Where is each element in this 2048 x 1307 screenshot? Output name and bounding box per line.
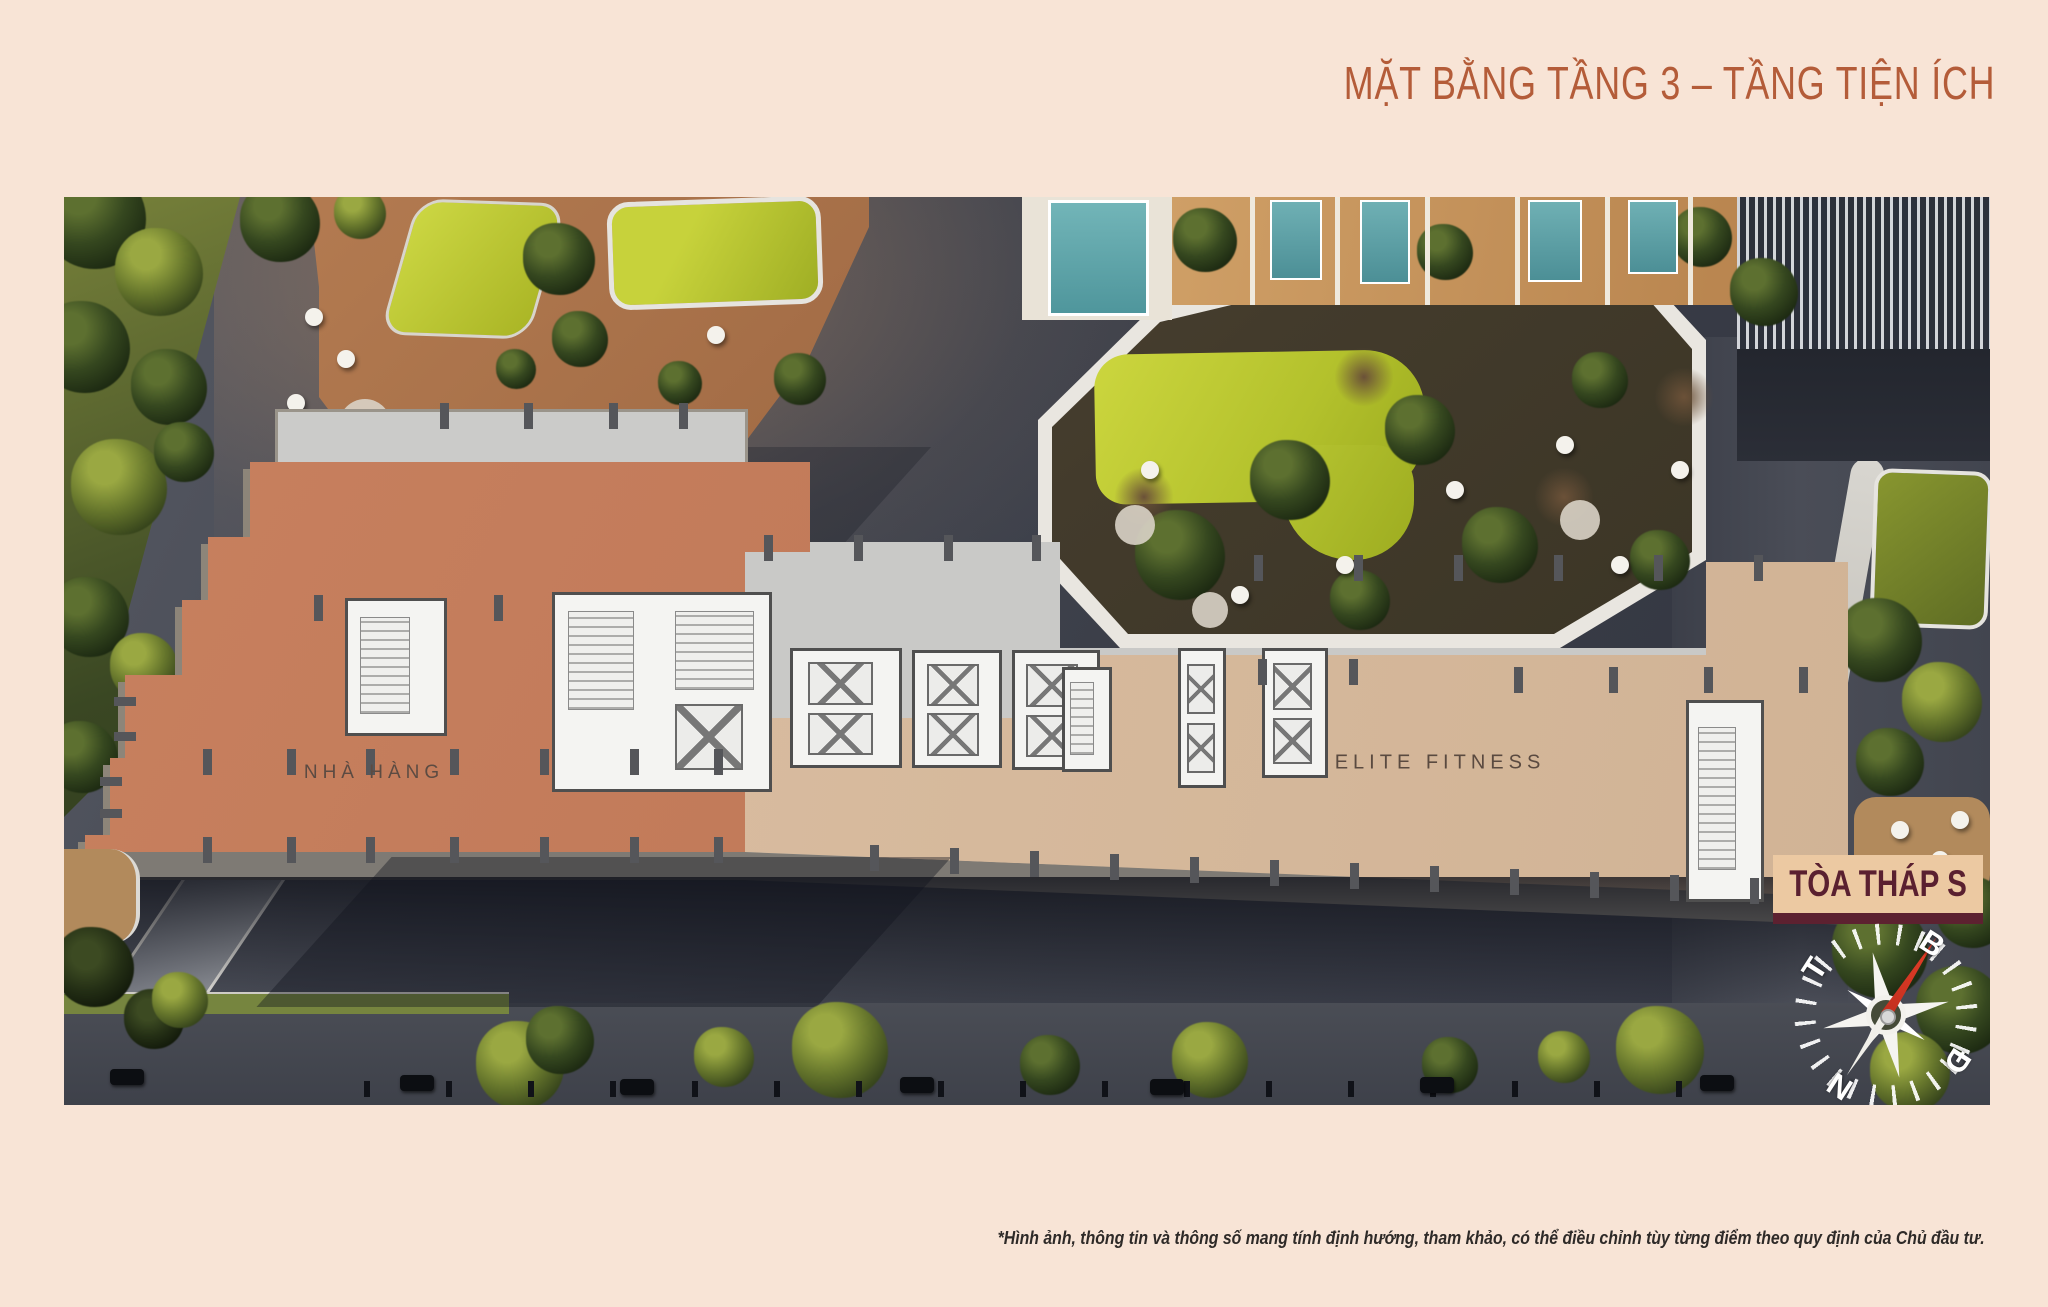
swimming-pool xyxy=(1048,200,1149,316)
sand-terrace xyxy=(64,849,140,944)
wall-tick xyxy=(1754,555,1763,581)
tree xyxy=(71,439,167,535)
wall-tick xyxy=(100,777,122,786)
tree xyxy=(115,228,203,316)
compass-pin xyxy=(1880,1009,1896,1025)
tree xyxy=(1462,507,1538,583)
area-label-nha-hang: NHÀ HÀNG xyxy=(304,762,444,784)
tree xyxy=(131,349,207,425)
floor-slab xyxy=(278,542,1060,857)
area-label-elite-fitness: ELITE FITNESS xyxy=(1335,752,1546,775)
tree xyxy=(1902,662,1982,742)
wall-tick xyxy=(1554,555,1563,581)
umbrella-icon xyxy=(1446,481,1464,499)
tree xyxy=(64,721,118,793)
tree xyxy=(110,633,178,701)
umbrella-icon xyxy=(1556,436,1574,454)
tree xyxy=(1330,570,1390,630)
mulch-bed xyxy=(1534,467,1594,527)
lawn-patch xyxy=(1869,468,1990,630)
tree xyxy=(64,577,129,657)
siteplan-render: NHÀ HÀNG ELITE FITNESS TÒA THÁP S B Đ N … xyxy=(64,197,1990,1105)
wall-tick xyxy=(1654,555,1663,581)
tower-tag-label: TÒA THÁP S xyxy=(1789,863,1967,905)
tower-roof xyxy=(1737,349,1990,461)
compass-icon: B Đ N T xyxy=(1776,905,1990,1105)
courtyard-lawn xyxy=(1282,445,1414,560)
disclaimer: *Hình ảnh, thông tin và thông số mang tí… xyxy=(998,1228,1985,1249)
floor-slab xyxy=(278,412,745,544)
tree xyxy=(1856,728,1924,796)
tree xyxy=(1630,530,1690,590)
wall-tick xyxy=(114,732,136,741)
villa-deck xyxy=(1172,197,1737,305)
page-title: MẶT BẰNG TẦNG 3 – TẦNG TIỆN ÍCH xyxy=(1343,56,1995,110)
tree xyxy=(1135,510,1225,600)
wall-tick xyxy=(203,749,212,775)
patio-circle xyxy=(1192,592,1228,628)
lawn-patch xyxy=(606,197,824,311)
wall-tick xyxy=(1254,555,1263,581)
umbrella-icon xyxy=(1671,461,1689,479)
street xyxy=(64,1003,1990,1105)
tree xyxy=(154,422,214,482)
umbrella-icon xyxy=(1611,556,1629,574)
mulch-bed xyxy=(1654,367,1714,427)
tree xyxy=(1572,352,1628,408)
tree xyxy=(64,301,130,393)
wall-tick xyxy=(114,697,136,706)
wall-tick xyxy=(100,809,122,818)
louvered-roof-building xyxy=(1737,197,1990,353)
tree xyxy=(64,197,146,269)
patio-circle xyxy=(1560,500,1600,540)
umbrella-icon xyxy=(1231,586,1249,604)
wall-tick xyxy=(1454,555,1463,581)
